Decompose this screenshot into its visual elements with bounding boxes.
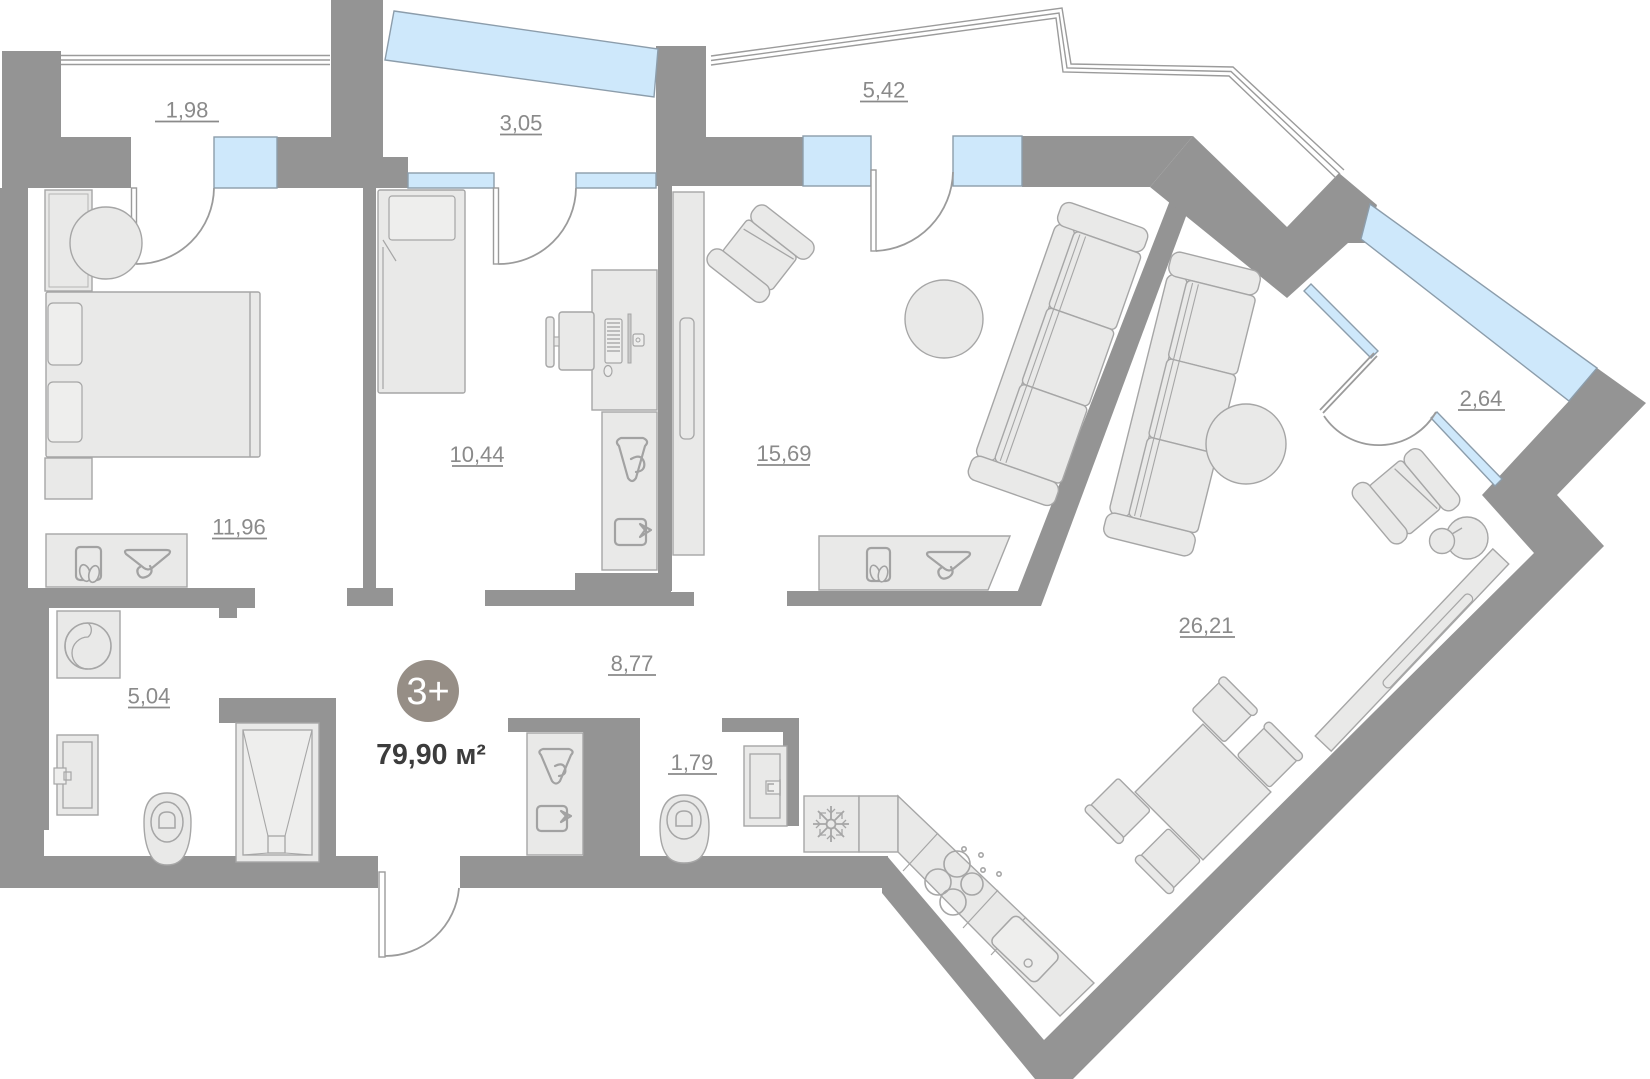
svg-text:8,77: 8,77 xyxy=(611,651,654,676)
svg-text:15,69: 15,69 xyxy=(756,441,811,466)
svg-text:5,42: 5,42 xyxy=(863,78,906,103)
svg-text:11,96: 11,96 xyxy=(212,515,265,540)
svg-text:26,21: 26,21 xyxy=(1178,613,1233,638)
svg-text:2,64: 2,64 xyxy=(1460,386,1503,411)
svg-text:3,05: 3,05 xyxy=(500,111,543,136)
svg-text:10,44: 10,44 xyxy=(449,442,504,467)
svg-text:1,98: 1,98 xyxy=(166,98,209,123)
svg-text:5,04: 5,04 xyxy=(128,684,171,709)
svg-text:79,90 м²: 79,90 м² xyxy=(376,739,486,771)
svg-text:1,79: 1,79 xyxy=(671,750,714,775)
svg-text:3+: 3+ xyxy=(406,671,449,713)
